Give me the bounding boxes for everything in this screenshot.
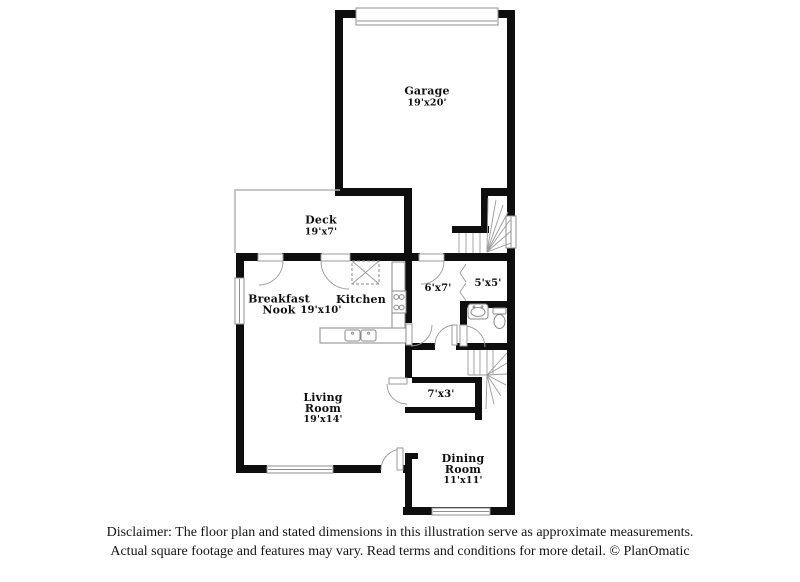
main-top-wall-2 xyxy=(282,253,322,261)
right-exterior-wall-lower xyxy=(507,248,515,515)
door-kitchen-to-corridor xyxy=(406,324,432,346)
garage-bottom-wall-right xyxy=(481,188,515,196)
door-deck-to-kitchen xyxy=(321,254,350,289)
front-door xyxy=(381,448,403,470)
living-bottom-wall-left xyxy=(236,465,267,473)
hallway-right-wall xyxy=(475,377,482,420)
door-entry-hall-to-corridor xyxy=(435,325,457,345)
stair-top-wall xyxy=(452,226,489,233)
garage-left-wall xyxy=(335,10,343,196)
left-exterior-wall-upper xyxy=(236,253,244,278)
toilet xyxy=(493,308,506,329)
deck-outline xyxy=(235,190,340,253)
hallway-top-wall xyxy=(412,377,475,383)
kitchen-cooktop xyxy=(392,291,406,313)
stair-enclosure-wall xyxy=(481,196,488,227)
closet-bifold-doors xyxy=(460,264,466,301)
window-living-bottom xyxy=(267,466,333,473)
disclaimer-line-2: Actual square footage and features may v… xyxy=(0,542,800,561)
floor-plan-canvas: Garage 19'x20' Deck 19'x7' Breakfast Noo… xyxy=(0,0,800,582)
door-garage-to-entry-hall xyxy=(419,254,444,284)
deck-right-wall xyxy=(404,196,412,255)
window-dining-bottom xyxy=(432,508,490,515)
hallway-bottom-wall xyxy=(412,407,475,413)
bathroom-sink xyxy=(468,304,488,319)
window-breakfast-left xyxy=(235,278,244,324)
door-deck-to-nook xyxy=(258,254,283,285)
garage-door xyxy=(356,8,498,25)
doors xyxy=(258,254,485,470)
door-hallway-to-living xyxy=(387,378,407,404)
disclaimer: Disclaimer: The floor plan and stated di… xyxy=(0,523,800,561)
hallway-left-post xyxy=(405,407,412,413)
main-top-wall-3 xyxy=(350,253,420,261)
garage-bottom-wall-left xyxy=(335,188,412,196)
kitchen-pantry xyxy=(352,261,379,284)
floor-plan-drawing xyxy=(0,0,800,582)
bathroom-left-wall xyxy=(460,308,467,325)
dining-left-wall xyxy=(405,453,412,515)
right-exterior-wall-upper xyxy=(507,10,515,216)
living-bottom-wall-right xyxy=(333,465,381,473)
deck-edge-line xyxy=(235,190,340,253)
left-exterior-wall-lower xyxy=(236,324,244,465)
main-top-wall-4 xyxy=(443,253,515,261)
disclaimer-line-1: Disclaimer: The floor plan and stated di… xyxy=(0,523,800,542)
